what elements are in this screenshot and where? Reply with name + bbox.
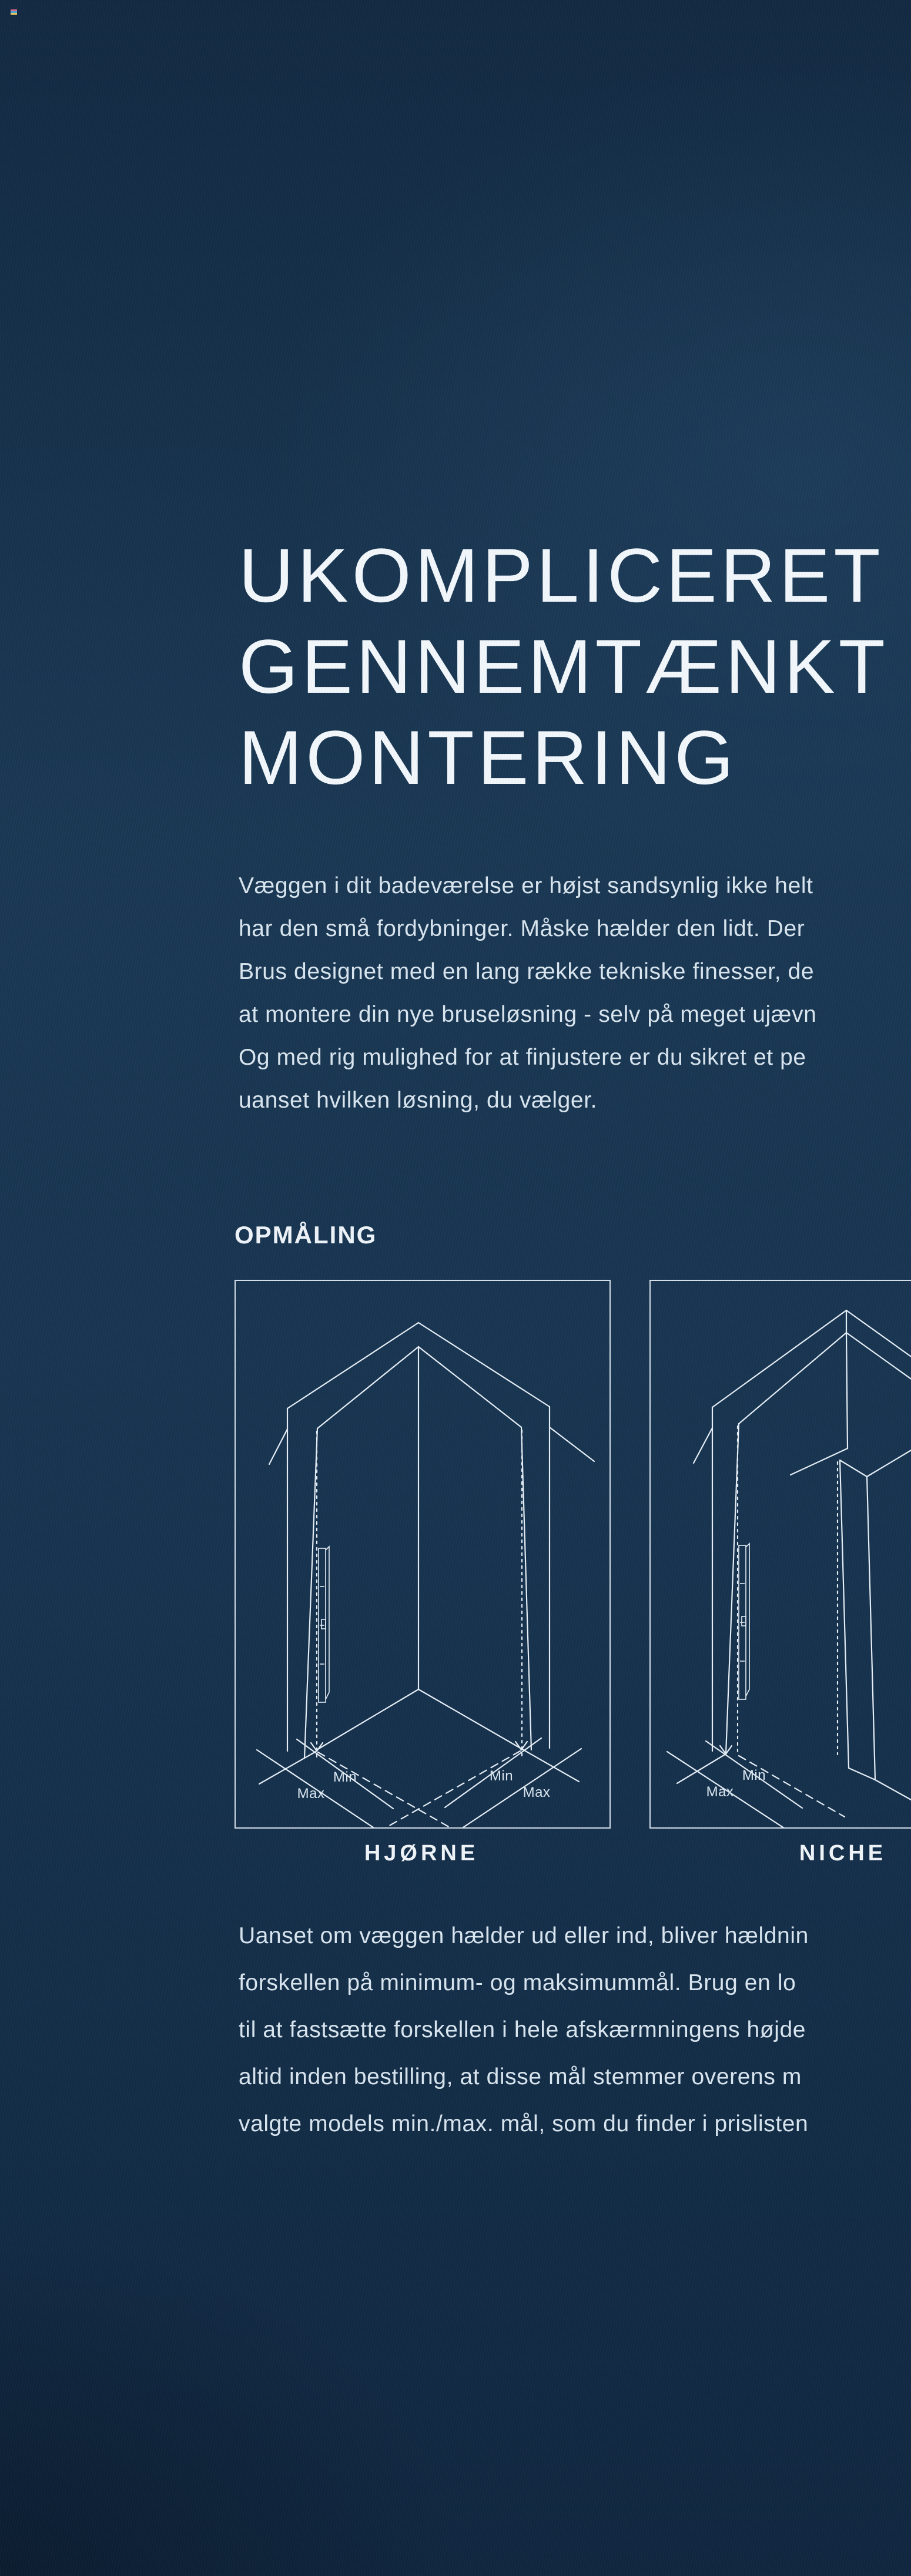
- body-paragraph: Uanset om væggen hælder ud eller ind, bl…: [239, 1913, 809, 2148]
- body-line: valgte models min./max. mål, som du find…: [239, 2101, 809, 2148]
- section-heading: OPMÅLING: [235, 1221, 377, 1249]
- intro-paragraph: Væggen i dit badeværelse er højst sandsy…: [239, 864, 816, 1122]
- intro-line: Og med rig mulighed for at finjustere er…: [239, 1036, 816, 1079]
- page-title: UKOMPLICERET GENNEMTÆNKT MONTERING: [239, 530, 889, 803]
- niche-max-label: Max: [706, 1784, 734, 1800]
- title-line-2: GENNEMTÆNKT: [239, 621, 889, 712]
- marker-stripe-pink: [11, 9, 17, 11]
- body-line: forskellen på minimum- og maksimummål. B…: [239, 1960, 809, 2007]
- figure-hjorne: Min Max Min Max: [235, 1280, 611, 1829]
- intro-line: har den små fordybninger. Måske hælder d…: [239, 907, 816, 950]
- figure-niche: Min Max: [649, 1280, 911, 1829]
- hjorne-corner-diagram: Min Max Min Max: [236, 1281, 609, 1827]
- corner-marker-icon: [11, 9, 17, 15]
- hjorne-right-max-label: Max: [523, 1785, 551, 1800]
- intro-line: Brus designet med en lang række tekniske…: [239, 950, 816, 993]
- body-line: altid inden bestilling, at disse mål ste…: [239, 2054, 809, 2101]
- niche-min-label: Min: [742, 1767, 766, 1783]
- figure-label-hjorne: HJØRNE: [235, 1841, 608, 1866]
- hjorne-right-min-label: Min: [490, 1768, 513, 1784]
- title-line-1: UKOMPLICERET: [239, 530, 889, 621]
- hjorne-left-min-label: Min: [333, 1769, 357, 1785]
- hjorne-left-max-label: Max: [297, 1786, 325, 1802]
- wall-profile-bar: [319, 1547, 329, 1702]
- intro-line: Væggen i dit badeværelse er højst sandsy…: [239, 864, 816, 907]
- figure-label-niche: NICHE: [649, 1841, 911, 1866]
- niche-diagram: Min Max: [651, 1281, 911, 1827]
- body-line: Uanset om væggen hælder ud eller ind, bl…: [239, 1913, 809, 1960]
- body-line: til at fastsætte forskellen i hele afskæ…: [239, 2007, 809, 2054]
- title-line-3: MONTERING: [239, 712, 889, 803]
- wall-profile-bar: [739, 1544, 749, 1699]
- intro-line: at montere din nye bruseløsning - selv p…: [239, 993, 816, 1036]
- marker-stripe-blue: [11, 11, 17, 13]
- intro-line: uanset hvilken løsning, du vælger.: [239, 1079, 816, 1122]
- marker-stripe-yellow: [11, 13, 17, 15]
